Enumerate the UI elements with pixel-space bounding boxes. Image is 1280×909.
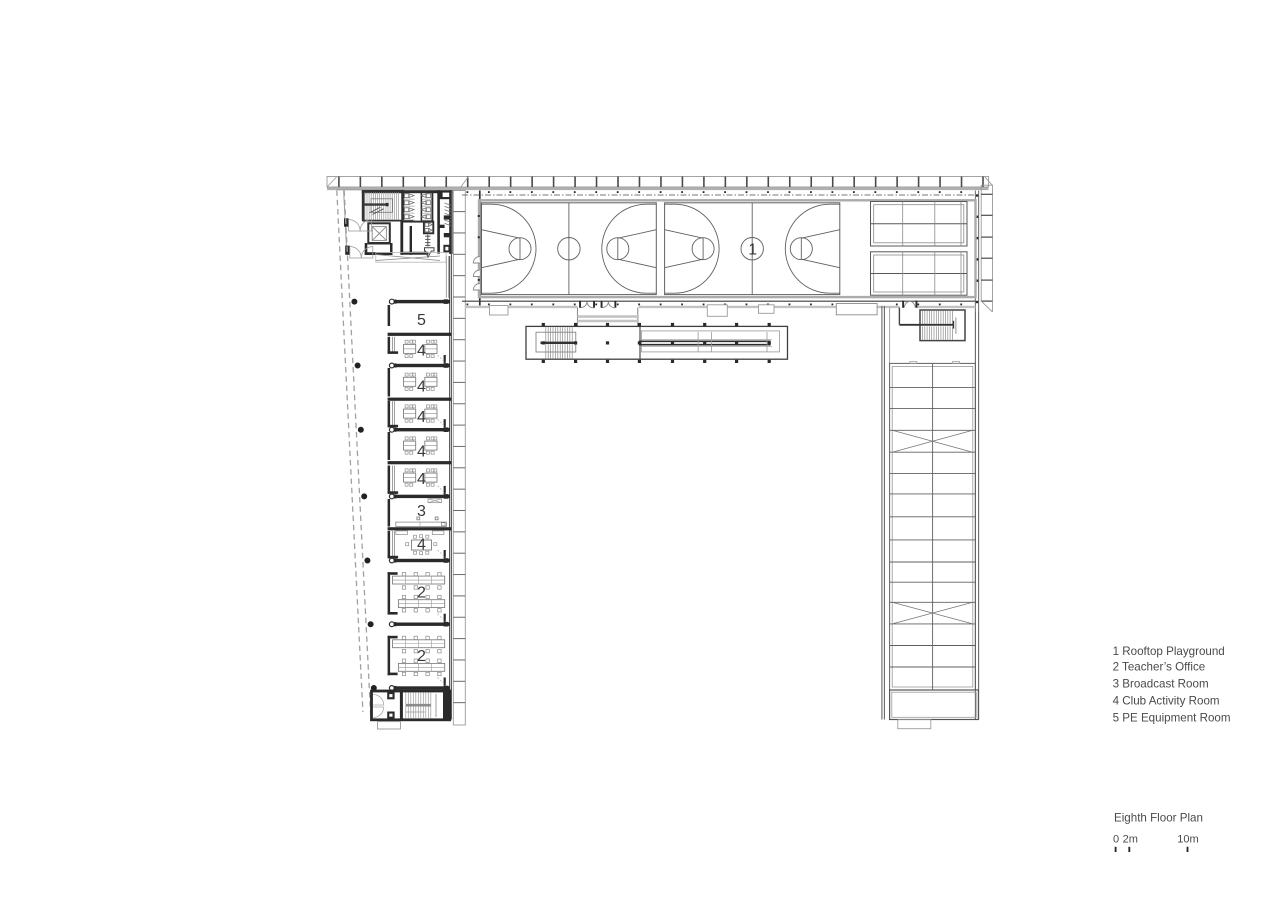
svg-text:4: 4 (417, 342, 426, 359)
svg-text:4 Club Activity Room: 4 Club Activity Room (1113, 695, 1220, 708)
svg-text:5: 5 (417, 312, 426, 329)
svg-text:Eighth Floor Plan: Eighth Floor Plan (1114, 811, 1203, 824)
svg-text:4: 4 (417, 537, 426, 554)
svg-text:2: 2 (417, 648, 426, 665)
svg-text:1 Rooftop Playground: 1 Rooftop Playground (1113, 645, 1225, 658)
svg-text:4: 4 (417, 471, 426, 488)
svg-text:1: 1 (748, 241, 757, 258)
svg-text:2: 2 (417, 584, 426, 601)
svg-text:4: 4 (417, 378, 426, 395)
svg-text:3 Broadcast Room: 3 Broadcast Room (1113, 678, 1209, 691)
svg-text:5 PE Equipment Room: 5 PE Equipment Room (1113, 712, 1231, 725)
svg-text:2m: 2m (1123, 834, 1138, 846)
svg-text:2 Teacher’s Office: 2 Teacher’s Office (1113, 661, 1206, 674)
svg-text:10m: 10m (1177, 834, 1198, 846)
svg-text:4: 4 (417, 409, 426, 426)
svg-text:0: 0 (1113, 834, 1119, 846)
svg-text:4: 4 (417, 443, 426, 460)
svg-text:3: 3 (417, 503, 426, 520)
